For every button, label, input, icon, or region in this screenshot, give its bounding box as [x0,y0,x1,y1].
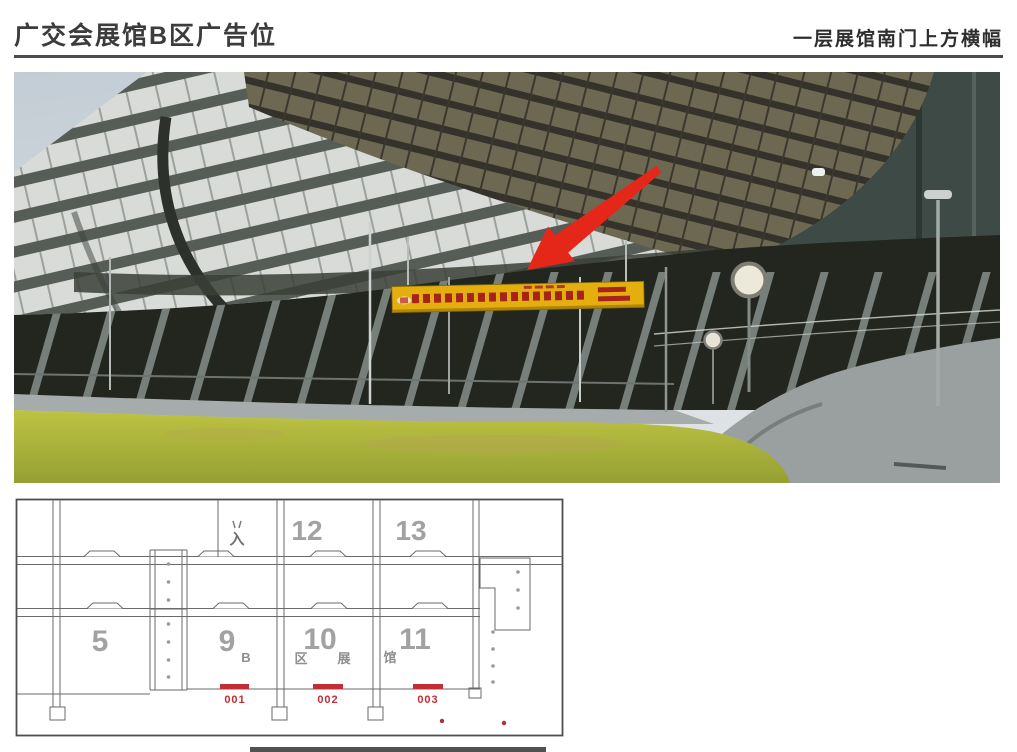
position-label-001: 001 [224,694,245,706]
red-dot [502,721,506,725]
plan-wall-band-mid [17,603,480,617]
plan-column-wall [368,500,383,721]
slide-page: 广交会展馆B区广告位 一层展馆南门上方横幅 [0,0,1017,752]
road-sign-icon [733,264,766,297]
hall-label-11: 11 [399,623,431,656]
plan-outer-wall [17,500,563,736]
page-subtitle: 一层展馆南门上方横幅 [793,30,1003,49]
zone-char-zhan: 展 [337,651,351,666]
plan-column-wall [272,500,287,721]
plan-corridor [150,550,187,690]
position-label-003: 003 [417,694,438,706]
page-title: 广交会展馆B区广告位 [14,24,277,49]
plan-column-wall [50,500,65,721]
entrance-icon: 入 [229,521,244,548]
ad-banner [392,281,644,312]
grass-patch [364,435,624,453]
ad-position-bars [220,684,443,689]
zone-char-b: B [241,650,250,665]
red-dot [440,719,444,723]
plan-column-wall [469,500,481,699]
entrance-char: 入 [229,531,244,548]
page-header: 广交会展馆B区广告位 一层展馆南门上方横幅 [14,0,1003,58]
zone-char-guan: 馆 [383,650,396,665]
hall-label-10: 10 [303,623,336,656]
camera-icon [812,168,825,176]
hall-label-5: 5 [92,625,109,658]
hall-label-13: 13 [395,515,426,546]
position-label-002: 002 [317,694,338,706]
plan-l-room [480,558,530,630]
floor-plan: 入 5 9 10 11 12 13 B 区 展 馆 001 002 003 [14,497,565,738]
hall-label-12: 12 [291,515,322,546]
footer-bar [250,747,546,752]
lamp-head-icon [924,190,952,199]
zone-char-qu: 区 [294,651,307,666]
hall-label-9: 9 [219,625,236,658]
floor-plan-drawing: 入 5 9 10 11 12 13 B 区 展 馆 001 002 003 [14,497,565,738]
building-photo-scene [14,72,1000,483]
building-photo [14,72,1000,483]
road-sign-small-icon [705,332,722,349]
grass-patch-2 [164,428,284,440]
